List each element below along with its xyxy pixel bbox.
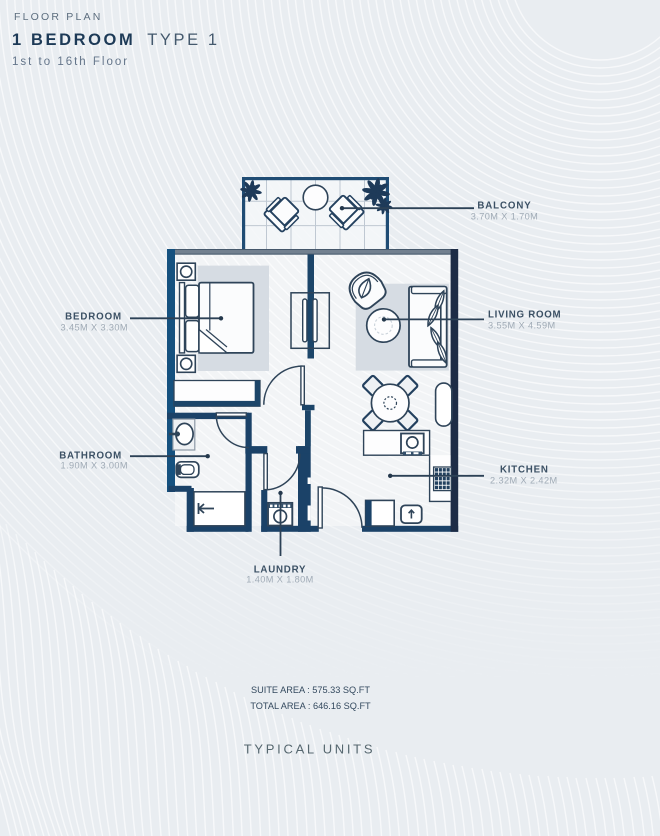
svg-text:1.40M X 1.80M: 1.40M X 1.80M bbox=[246, 574, 314, 584]
svg-text:3.70M X 1.70M: 3.70M X 1.70M bbox=[471, 212, 539, 222]
svg-text:1 BEDROOM TYPE 1: 1 BEDROOM TYPE 1 bbox=[12, 31, 220, 49]
svg-text:BALCONY: BALCONY bbox=[477, 201, 531, 212]
svg-text:TOTAL AREA : 646.16 SQ.FT: TOTAL AREA : 646.16 SQ.FT bbox=[250, 701, 371, 711]
svg-text:LIVING ROOM: LIVING ROOM bbox=[488, 310, 561, 321]
svg-text:KITCHEN: KITCHEN bbox=[500, 465, 549, 476]
svg-text:SUITE AREA : 575.33 SQ.FT: SUITE AREA : 575.33 SQ.FT bbox=[251, 685, 370, 695]
svg-text:3.45M X 3.30M: 3.45M X 3.30M bbox=[60, 322, 128, 332]
svg-text:1st to 16th Floor: 1st to 16th Floor bbox=[12, 56, 129, 68]
svg-text:FLOOR PLAN: FLOOR PLAN bbox=[14, 11, 103, 23]
svg-text:3.55M X 4.59M: 3.55M X 4.59M bbox=[488, 320, 556, 330]
svg-text:BEDROOM: BEDROOM bbox=[65, 311, 122, 322]
svg-text:1.90M X 3.00M: 1.90M X 3.00M bbox=[60, 461, 128, 471]
svg-text:TYPICAL UNITS: TYPICAL UNITS bbox=[244, 742, 375, 757]
svg-text:2.32M X 2.42M: 2.32M X 2.42M bbox=[490, 475, 558, 485]
